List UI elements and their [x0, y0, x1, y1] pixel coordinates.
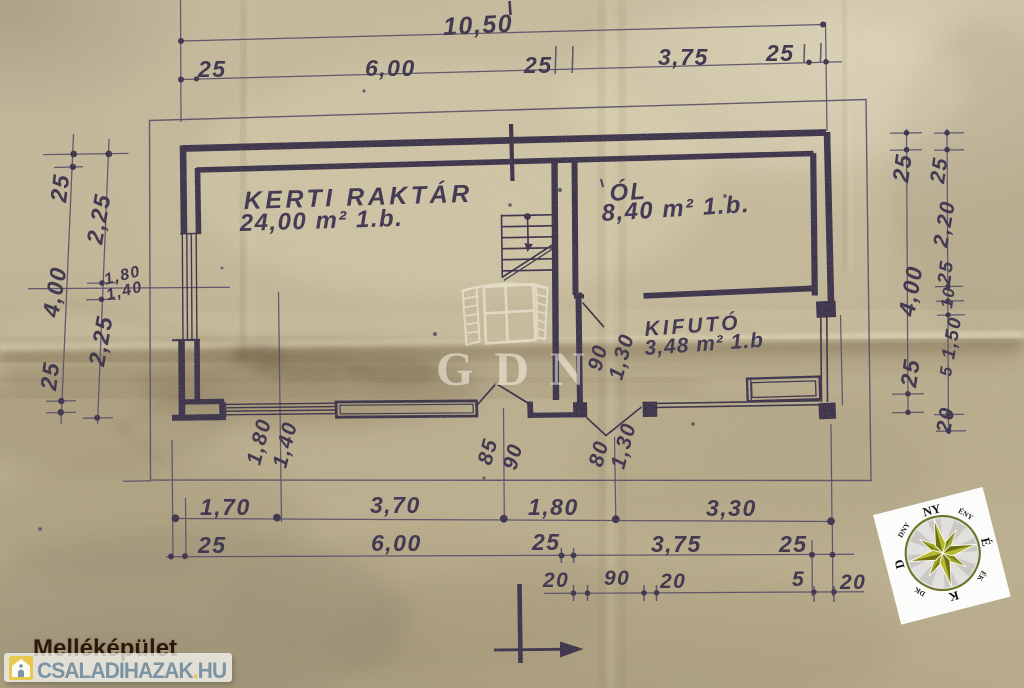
svg-text:GDN: GDN: [436, 343, 606, 396]
